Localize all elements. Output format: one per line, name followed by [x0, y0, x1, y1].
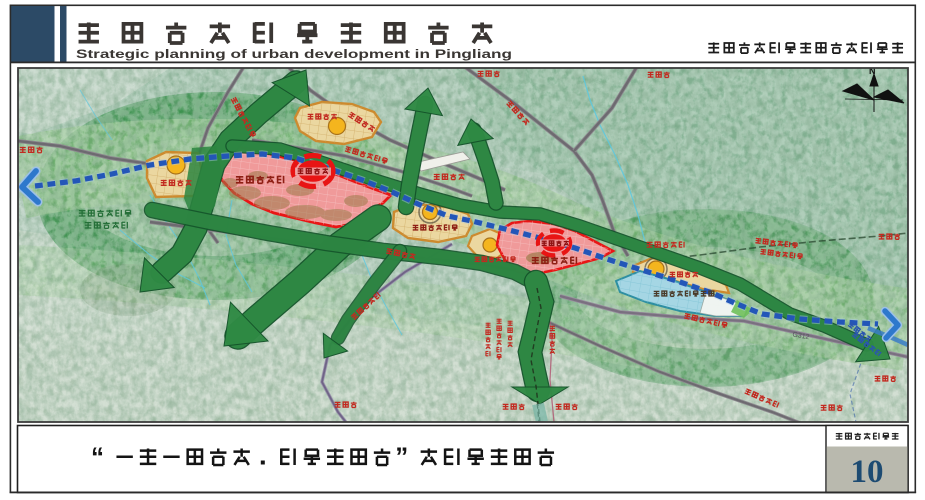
svg-text:10: 10 — [851, 454, 884, 490]
svg-text:”: ” — [395, 442, 408, 472]
svg-text:“: “ — [91, 442, 104, 472]
svg-text:Strategic planning of urban de: Strategic planning of urban development … — [76, 49, 512, 61]
